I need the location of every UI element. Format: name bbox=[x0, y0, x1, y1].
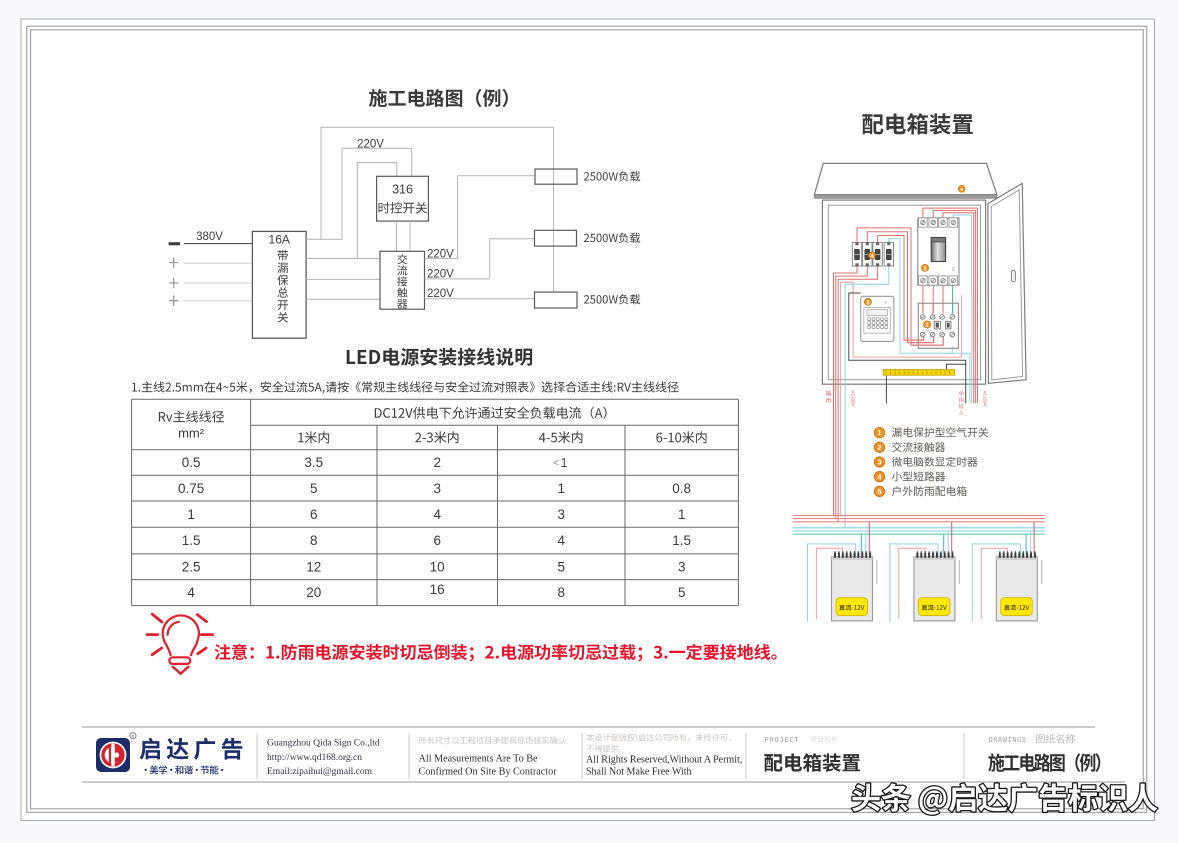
svg-text:5: 5 bbox=[877, 487, 881, 496]
svg-text:3: 3 bbox=[557, 507, 565, 522]
svg-text:Guangzhou Qida Sign Co.,ltd: Guangzhou Qida Sign Co.,ltd bbox=[267, 739, 380, 749]
svg-text:5: 5 bbox=[678, 585, 686, 600]
svg-text:3: 3 bbox=[678, 559, 686, 574]
svg-text:6: 6 bbox=[310, 507, 318, 522]
svg-text:3: 3 bbox=[877, 458, 881, 467]
svg-text:5: 5 bbox=[557, 559, 565, 574]
svg-text:1: 1 bbox=[678, 507, 686, 522]
svg-text:1: 1 bbox=[557, 481, 565, 496]
svg-text:2.5: 2.5 bbox=[182, 559, 201, 574]
svg-text:DRAWINGS: DRAWINGS bbox=[989, 737, 1027, 745]
svg-text:Shall Not Make Free With: Shall Not Make Free With bbox=[586, 767, 692, 778]
svg-text:Email:zipaihui@gmail.com: Email:zipaihui@gmail.com bbox=[267, 767, 373, 777]
svg-text:mm²: mm² bbox=[178, 426, 205, 441]
svg-text:6: 6 bbox=[433, 533, 441, 548]
svg-text:20: 20 bbox=[306, 585, 321, 600]
svg-text:All Rights Reserved,Without A: All Rights Reserved,Without A Permit, bbox=[586, 755, 742, 766]
svg-text:1: 1 bbox=[560, 455, 567, 470]
svg-text:2: 2 bbox=[433, 455, 441, 470]
svg-text:4: 4 bbox=[433, 507, 441, 522]
svg-text:AC220V: AC220V bbox=[983, 391, 988, 407]
svg-text:1: 1 bbox=[877, 428, 881, 437]
svg-text:http://www.qd168.org.cn: http://www.qd168.org.cn bbox=[267, 753, 362, 763]
svg-text:16A: 16A bbox=[269, 233, 290, 247]
svg-text:PROJECT: PROJECT bbox=[765, 737, 800, 745]
svg-text:220V: 220V bbox=[427, 288, 454, 300]
svg-text:AC220V: AC220V bbox=[851, 391, 856, 407]
svg-text:2: 2 bbox=[877, 443, 881, 452]
svg-text:316: 316 bbox=[392, 183, 413, 197]
svg-text:R: R bbox=[131, 734, 134, 739]
svg-text:3.5: 3.5 bbox=[304, 455, 323, 470]
svg-text:4: 4 bbox=[187, 585, 195, 600]
svg-text:All Measurements Are To Be: All Measurements Are To Be bbox=[419, 754, 539, 765]
svg-text:5: 5 bbox=[960, 187, 963, 193]
svg-text:8: 8 bbox=[557, 585, 565, 600]
svg-text:3: 3 bbox=[433, 481, 441, 496]
svg-text:220V: 220V bbox=[427, 248, 454, 260]
svg-text:0.75: 0.75 bbox=[178, 481, 204, 496]
svg-text:220V: 220V bbox=[357, 138, 384, 150]
svg-text:0.5: 0.5 bbox=[182, 455, 201, 470]
svg-text:1: 1 bbox=[187, 507, 195, 522]
svg-text:1.5: 1.5 bbox=[672, 533, 691, 548]
svg-text:1.5: 1.5 bbox=[182, 533, 201, 548]
svg-text:Confirmed On Site By Contracto: Confirmed On Site By Contractor bbox=[419, 767, 558, 778]
svg-text:8: 8 bbox=[310, 533, 318, 548]
svg-text:5: 5 bbox=[310, 481, 318, 496]
svg-text:10: 10 bbox=[430, 559, 445, 574]
svg-text:380V: 380V bbox=[196, 231, 223, 243]
svg-text:<: < bbox=[553, 458, 559, 469]
svg-text:220V: 220V bbox=[427, 268, 454, 280]
svg-text:4: 4 bbox=[557, 533, 565, 548]
svg-text:B: B bbox=[952, 267, 955, 272]
svg-text:0.8: 0.8 bbox=[672, 481, 691, 496]
svg-text:12: 12 bbox=[306, 559, 321, 574]
svg-text:16: 16 bbox=[430, 582, 445, 597]
